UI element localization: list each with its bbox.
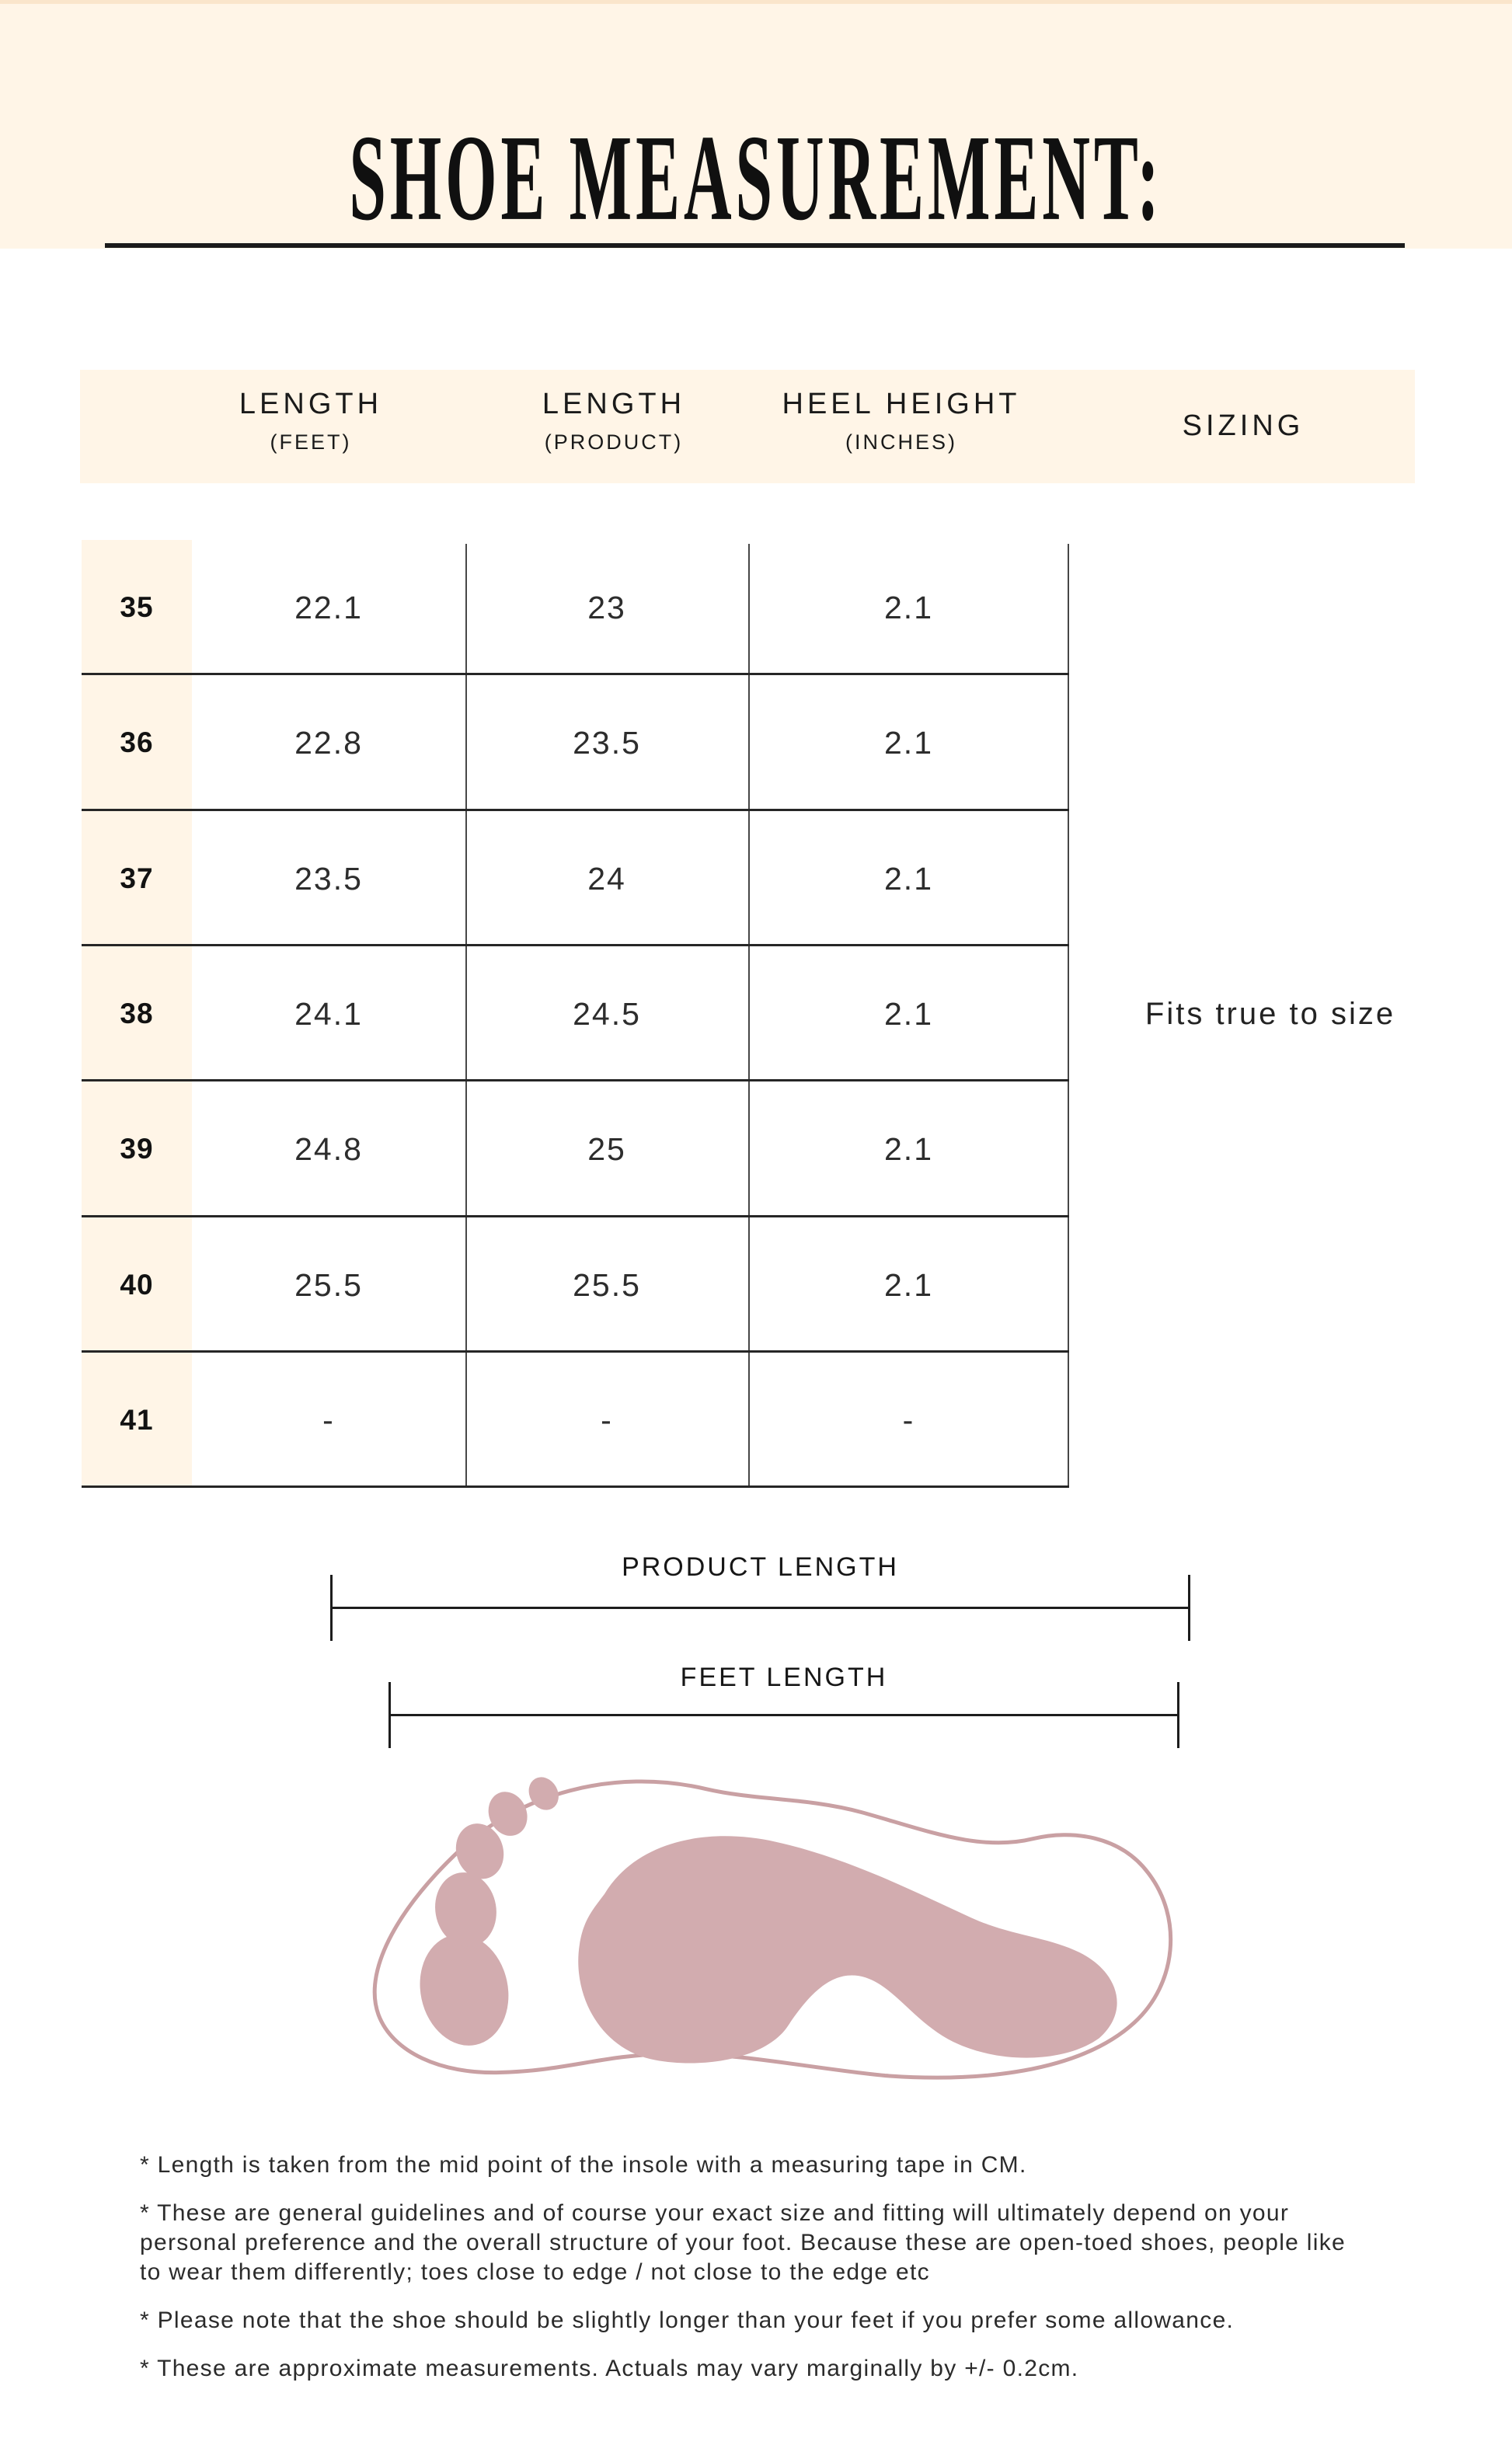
cell-product: 25 [465, 1081, 748, 1217]
header-top-edge [0, 0, 1512, 4]
cell-feet: 22.8 [192, 675, 465, 810]
sizing-note: Fits true to size [1107, 540, 1434, 1488]
column-header-heel-height: HEEL HEIGHT (INCHES) [746, 388, 1057, 455]
footnote: * Please note that the shoe should be sl… [140, 2306, 1356, 2335]
column-header-label: HEEL HEIGHT [746, 388, 1057, 421]
column-header-length-feet: LENGTH (FEET) [155, 388, 466, 455]
cell-feet: 22.1 [192, 540, 465, 675]
column-header-label: LENGTH [155, 388, 466, 421]
cell-feet: 24.1 [192, 946, 465, 1081]
cell-heel: 2.1 [748, 946, 1069, 1081]
cell-heel: 2.1 [748, 675, 1069, 810]
feet-length-measure-line [388, 1714, 1179, 1716]
cell-heel: 2.1 [748, 540, 1069, 675]
column-header-length-product: LENGTH (PRODUCT) [458, 388, 769, 455]
feet-length-label: FEET LENGTH [388, 1663, 1179, 1693]
page-title-text: SHOE MEASUREMENT: [349, 117, 1162, 240]
cell-feet: 23.5 [192, 811, 465, 946]
cell-product: 24 [465, 811, 748, 946]
footnote: * Length is taken from the mid point of … [140, 2151, 1356, 2180]
cell-feet: 25.5 [192, 1217, 465, 1353]
column-header-sublabel: (INCHES) [746, 430, 1057, 455]
cell-product: - [465, 1353, 748, 1488]
table-row: 3622.823.52.1 [82, 675, 1069, 810]
cell-product: 25.5 [465, 1217, 748, 1353]
cell-product: 23 [465, 540, 748, 675]
footprint-toe-5 [523, 1771, 564, 1815]
cell-feet: 24.8 [192, 1081, 465, 1217]
cell-product: 24.5 [465, 946, 748, 1081]
cell-size: 41 [82, 1353, 192, 1488]
footprint-illustration-icon [332, 1757, 1189, 2087]
table-row: 4025.525.52.1 [82, 1217, 1069, 1353]
size-chart-page: SHOE MEASUREMENT: LENGTH (FEET) LENGTH (… [0, 0, 1512, 2445]
cell-size: 40 [82, 1217, 192, 1353]
cell-heel: 2.1 [748, 1081, 1069, 1217]
footprint-sole [578, 1836, 1117, 2063]
table-row: 3824.124.52.1 [82, 946, 1069, 1081]
column-header-label: SIZING [1088, 410, 1399, 443]
header-band: SHOE MEASUREMENT: [0, 0, 1512, 249]
footnote: * These are general guidelines and of co… [140, 2199, 1356, 2287]
title-divider [105, 243, 1405, 248]
table-row: 3723.5242.1 [82, 811, 1069, 946]
cell-product: 23.5 [465, 675, 748, 810]
cell-size: 39 [82, 1081, 192, 1217]
footnote: * These are approximate measurements. Ac… [140, 2354, 1356, 2384]
table-row: 3522.1232.1 [82, 540, 1069, 675]
cell-size: 38 [82, 946, 192, 1081]
product-length-label: PRODUCT LENGTH [330, 1552, 1190, 1583]
column-header-sizing: SIZING [1088, 410, 1399, 443]
page-title: SHOE MEASUREMENT: [0, 129, 1512, 224]
column-header-sublabel: (FEET) [155, 430, 466, 455]
cell-heel: - [748, 1353, 1069, 1488]
footprint-toe-2 [430, 1868, 503, 1952]
table-row: 3924.8252.1 [82, 1081, 1069, 1217]
cell-size: 37 [82, 811, 192, 946]
cell-size: 36 [82, 675, 192, 810]
product-length-measure-line [330, 1607, 1190, 1609]
cell-feet: - [192, 1353, 465, 1488]
cell-size: 35 [82, 540, 192, 675]
column-header-sublabel: (PRODUCT) [458, 430, 769, 455]
cell-heel: 2.1 [748, 1217, 1069, 1353]
cell-heel: 2.1 [748, 811, 1069, 946]
footnotes: * Length is taken from the mid point of … [140, 2151, 1356, 2402]
column-header-label: LENGTH [458, 388, 769, 421]
table-row: 41--- [82, 1353, 1069, 1488]
